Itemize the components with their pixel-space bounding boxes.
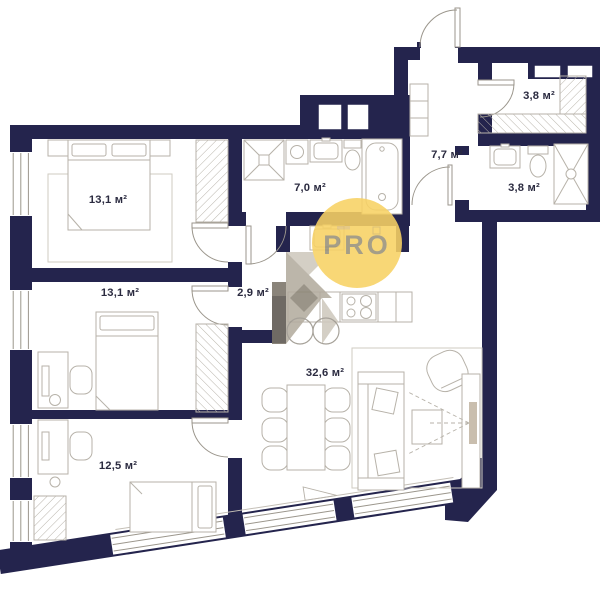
door [192,418,228,457]
door [192,223,228,262]
shelving [478,114,586,133]
room-label-bedroom-1: 13,1 м² [89,194,127,206]
room-label-wardrobe: 3,8 м² [523,90,555,102]
window [10,152,32,216]
stool [50,477,60,487]
chair [324,388,350,412]
room-label-hallway: 7,7 м² [431,149,463,161]
cabinet [410,84,428,136]
sofa [358,372,404,490]
chair [262,418,288,442]
window [10,290,32,350]
shower [244,140,284,180]
stool [50,395,61,406]
stove [342,294,376,320]
entrance-door [420,8,460,47]
chair [324,418,350,442]
chair [70,432,92,460]
nightstand [150,140,170,156]
window [10,500,32,542]
bedroom-1-furniture [48,140,228,262]
room-label-corridor: 2,9 м² [237,287,269,299]
bedroom-3-furniture [34,420,216,540]
floorplan-svg: PRO 13,1 м² 13,1 м² 12,5 м² 2,9 м² 7,0 м… [0,0,600,600]
washing-machine [286,140,308,164]
pillow [112,144,146,156]
floorplan-canvas: PRO 13,1 м² 13,1 м² 12,5 м² 2,9 м² 7,0 м… [0,0,600,600]
toilet [528,146,548,177]
sink [310,138,342,162]
wardrobe [196,140,228,222]
brand-badge: PRO [312,198,402,288]
monitor [42,366,49,396]
shower [554,144,588,204]
tv [469,402,477,444]
dining-furniture [262,385,350,470]
room-label-bathroom-large: 7,0 м² [294,182,326,194]
pillow [100,316,154,330]
sink [490,144,520,168]
room-label-bedroom-2: 13,1 м² [101,287,139,299]
wardrobe [34,496,66,540]
door [412,165,452,205]
chair [70,366,92,394]
room-label-bedroom-3: 12,5 м² [99,460,137,472]
nightstand [48,140,68,156]
chair [324,446,350,470]
chair [262,388,288,412]
pillow [374,450,399,475]
pillow [372,388,398,414]
window [10,424,32,478]
hallway-furniture [410,84,428,136]
brand-text: PRO [323,230,391,260]
bathroom-small-fixtures [490,144,588,204]
wardrobe [196,324,228,412]
living-furniture [352,346,482,490]
bathroom-large-fixtures [244,138,402,214]
room-label-living-kitchen: 32,6 м² [306,367,344,379]
chair [262,446,288,470]
dining-table [287,385,325,470]
toilet [344,140,361,170]
shelving [560,76,586,114]
monitor [42,432,49,460]
door [478,80,514,117]
room-label-bathroom-small: 3,8 м² [508,182,540,194]
bedroom-2-furniture [38,312,228,412]
door [192,286,228,325]
pillow [198,486,212,528]
pillow [72,144,106,156]
